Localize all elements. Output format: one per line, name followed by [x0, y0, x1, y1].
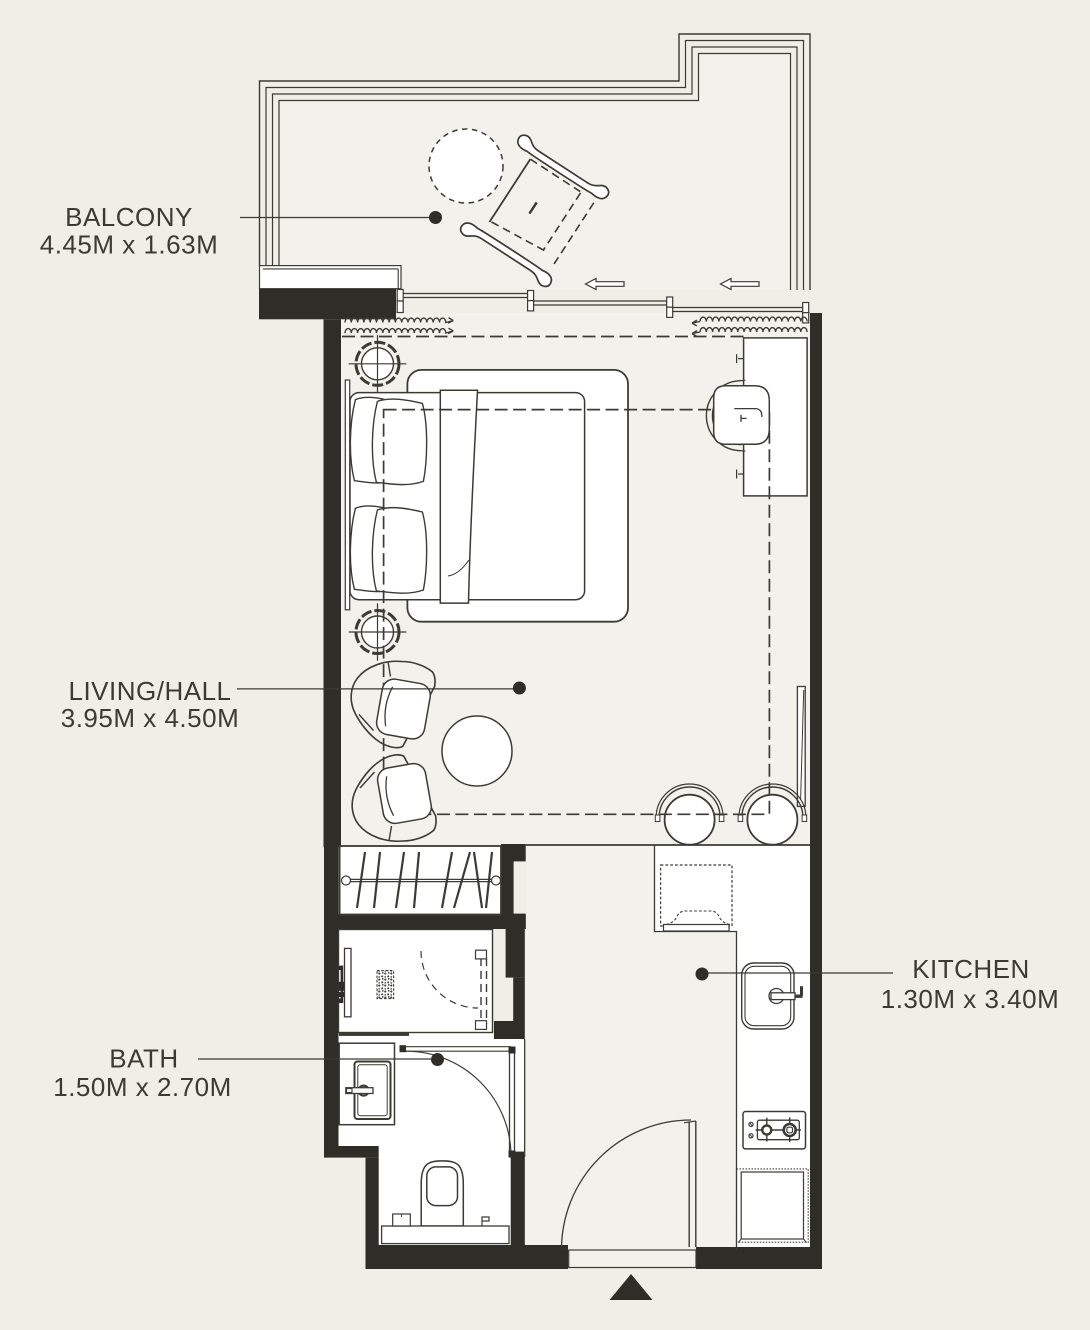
svg-text:LIVING/HALL: LIVING/HALL [68, 676, 231, 706]
svg-text:BALCONY: BALCONY [65, 202, 193, 232]
svg-text:KITCHEN: KITCHEN [912, 954, 1030, 984]
svg-text:3.95M x 4.50M: 3.95M x 4.50M [61, 703, 239, 733]
svg-text:4.45M x 1.63M: 4.45M x 1.63M [40, 230, 218, 260]
svg-text:1.30M x 3.40M: 1.30M x 3.40M [881, 984, 1059, 1014]
svg-text:BATH: BATH [109, 1044, 178, 1074]
svg-text:1.50M x 2.70M: 1.50M x 2.70M [53, 1072, 231, 1102]
